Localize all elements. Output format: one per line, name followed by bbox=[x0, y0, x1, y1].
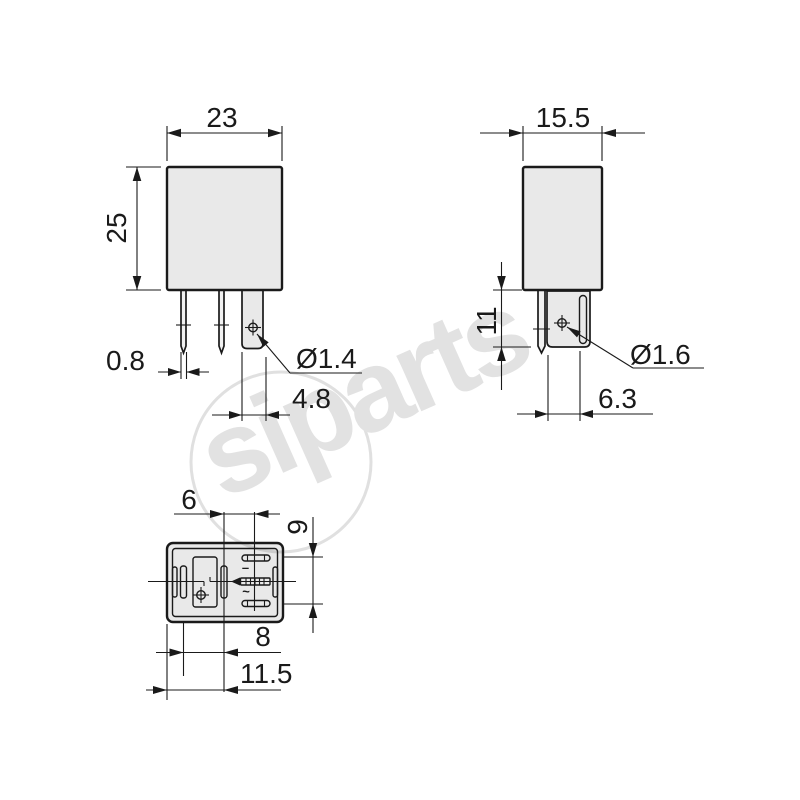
front-pin-width-label: 0.8 bbox=[106, 345, 145, 376]
front-width-label: 23 bbox=[206, 102, 237, 133]
side-terminal-length-label: 11 bbox=[471, 306, 502, 335]
watermark-text: siparts bbox=[180, 266, 546, 523]
side-blade-terminal bbox=[547, 291, 590, 347]
front-width-dimension: 23 bbox=[167, 102, 282, 161]
front-pin-width-dimension: 0.8 bbox=[106, 345, 209, 379]
side-pin bbox=[538, 290, 545, 353]
relay-drawing-canvas: siparts 23 bbox=[0, 0, 800, 800]
technical-drawing-page: siparts 23 bbox=[0, 0, 800, 800]
side-hole-label: Ø1.6 bbox=[630, 339, 691, 370]
bottom-spacing-coil-label: 8 bbox=[255, 621, 271, 652]
front-view: 23 25 0.8 4.8 bbox=[101, 102, 362, 421]
bottom-spacing-coil-dimension: 8 bbox=[156, 621, 281, 657]
side-body bbox=[523, 167, 602, 290]
bottom-spacing-width-dimension: 11.5 bbox=[146, 658, 292, 694]
front-height-label: 25 bbox=[101, 212, 132, 243]
bottom-spacing-center-label: 6 bbox=[181, 484, 197, 515]
front-pin-2 bbox=[219, 290, 224, 353]
bottom-spacing-vertical-dimension: 9 bbox=[282, 517, 323, 633]
bottom-ac-mark: ~ bbox=[242, 584, 250, 599]
bottom-spacing-width-label: 11.5 bbox=[240, 658, 292, 689]
bottom-spacing-vertical-label: 9 bbox=[282, 519, 313, 535]
front-blade-width-label: 4.8 bbox=[292, 383, 331, 414]
side-width-dimension: 15.5 bbox=[480, 102, 645, 161]
front-body bbox=[167, 167, 282, 290]
bottom-minus-mark: – bbox=[242, 560, 249, 575]
front-height-dimension: 25 bbox=[101, 167, 161, 290]
front-hole-label: Ø1.4 bbox=[296, 343, 357, 374]
side-width-label: 15.5 bbox=[536, 102, 591, 133]
side-blade-offset-label: 6.3 bbox=[598, 383, 637, 414]
front-pin-1 bbox=[181, 290, 186, 353]
